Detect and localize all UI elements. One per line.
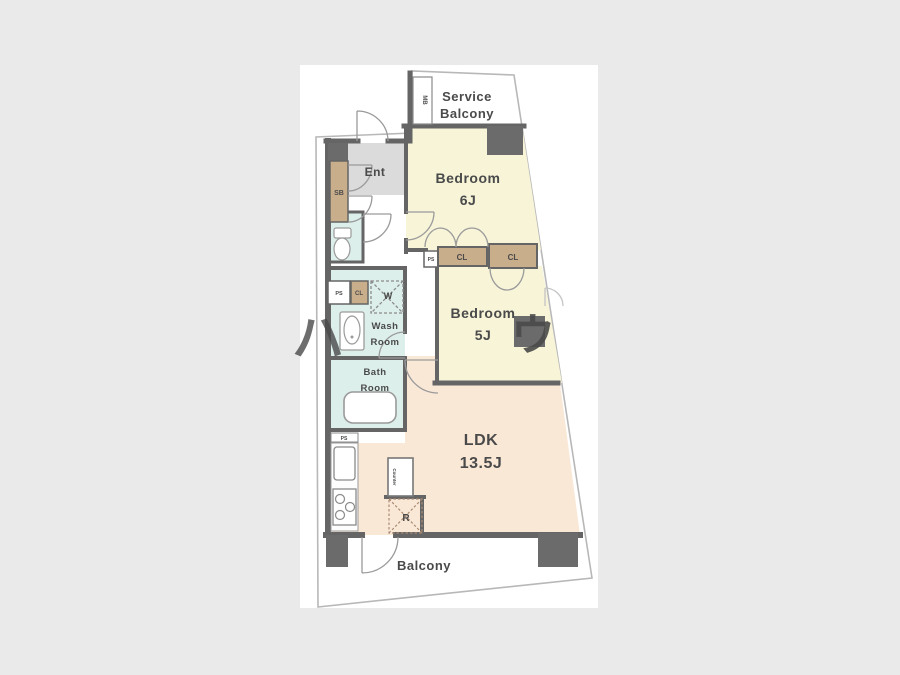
bathtub <box>344 392 396 423</box>
refrigerator-label: R <box>402 513 410 524</box>
service-balcony-label-2: Balcony <box>440 106 494 121</box>
pipe-space-3-label: PS <box>341 436 348 442</box>
closet-2-label: CL <box>508 253 519 262</box>
bedroom5-label: Bedroom <box>451 305 516 321</box>
vanity-drain <box>351 336 354 339</box>
balcony-label: Balcony <box>397 558 451 573</box>
kitchen-sink <box>334 447 355 480</box>
wall-block-entry <box>328 143 348 161</box>
washer-label: W <box>384 291 393 301</box>
entrance-label: Ent <box>365 165 386 179</box>
bathroom-label-2: Room <box>361 383 390 394</box>
bedroom6-size: 6J <box>460 192 477 208</box>
washroom-label-1: Wash <box>372 321 399 332</box>
pipe-space-1-label: PS <box>428 257 435 263</box>
closet-3-label: CL <box>355 291 363 297</box>
toilet-bowl <box>334 238 350 260</box>
ldk-size: 13.5J <box>460 455 503 472</box>
service-balcony-label-1: Service <box>442 89 492 104</box>
watermark-char-1: ハ <box>292 310 344 368</box>
counter-label: Counter <box>392 468 397 485</box>
washroom-label-2: Room <box>371 337 400 348</box>
floor-plan-page: Service Balcony MB Bedroom 6J Ent SB PS … <box>0 0 900 675</box>
floor-plan-canvas: Service Balcony MB Bedroom 6J Ent SB PS … <box>0 0 900 675</box>
pillar-balcony-right <box>538 533 578 567</box>
pillar-service-balcony <box>487 126 523 155</box>
closet-1-label: CL <box>457 253 468 262</box>
pillar-balcony-left <box>326 535 348 567</box>
shoe-box-label: SB <box>334 190 344 197</box>
counter-box <box>388 458 413 496</box>
meter-box-label: MB <box>421 95 427 105</box>
ldk-label: LDK <box>464 432 498 449</box>
bedroom6-label: Bedroom <box>436 170 501 186</box>
stove <box>333 489 356 525</box>
pipe-space-2-label: PS <box>335 291 343 297</box>
toilet-tank <box>334 228 351 238</box>
vanity-basin <box>344 316 360 344</box>
watermark-char-2: ウ <box>511 311 555 360</box>
bedroom5-size: 5J <box>475 327 492 343</box>
bathroom-label-1: Bath <box>363 367 386 378</box>
